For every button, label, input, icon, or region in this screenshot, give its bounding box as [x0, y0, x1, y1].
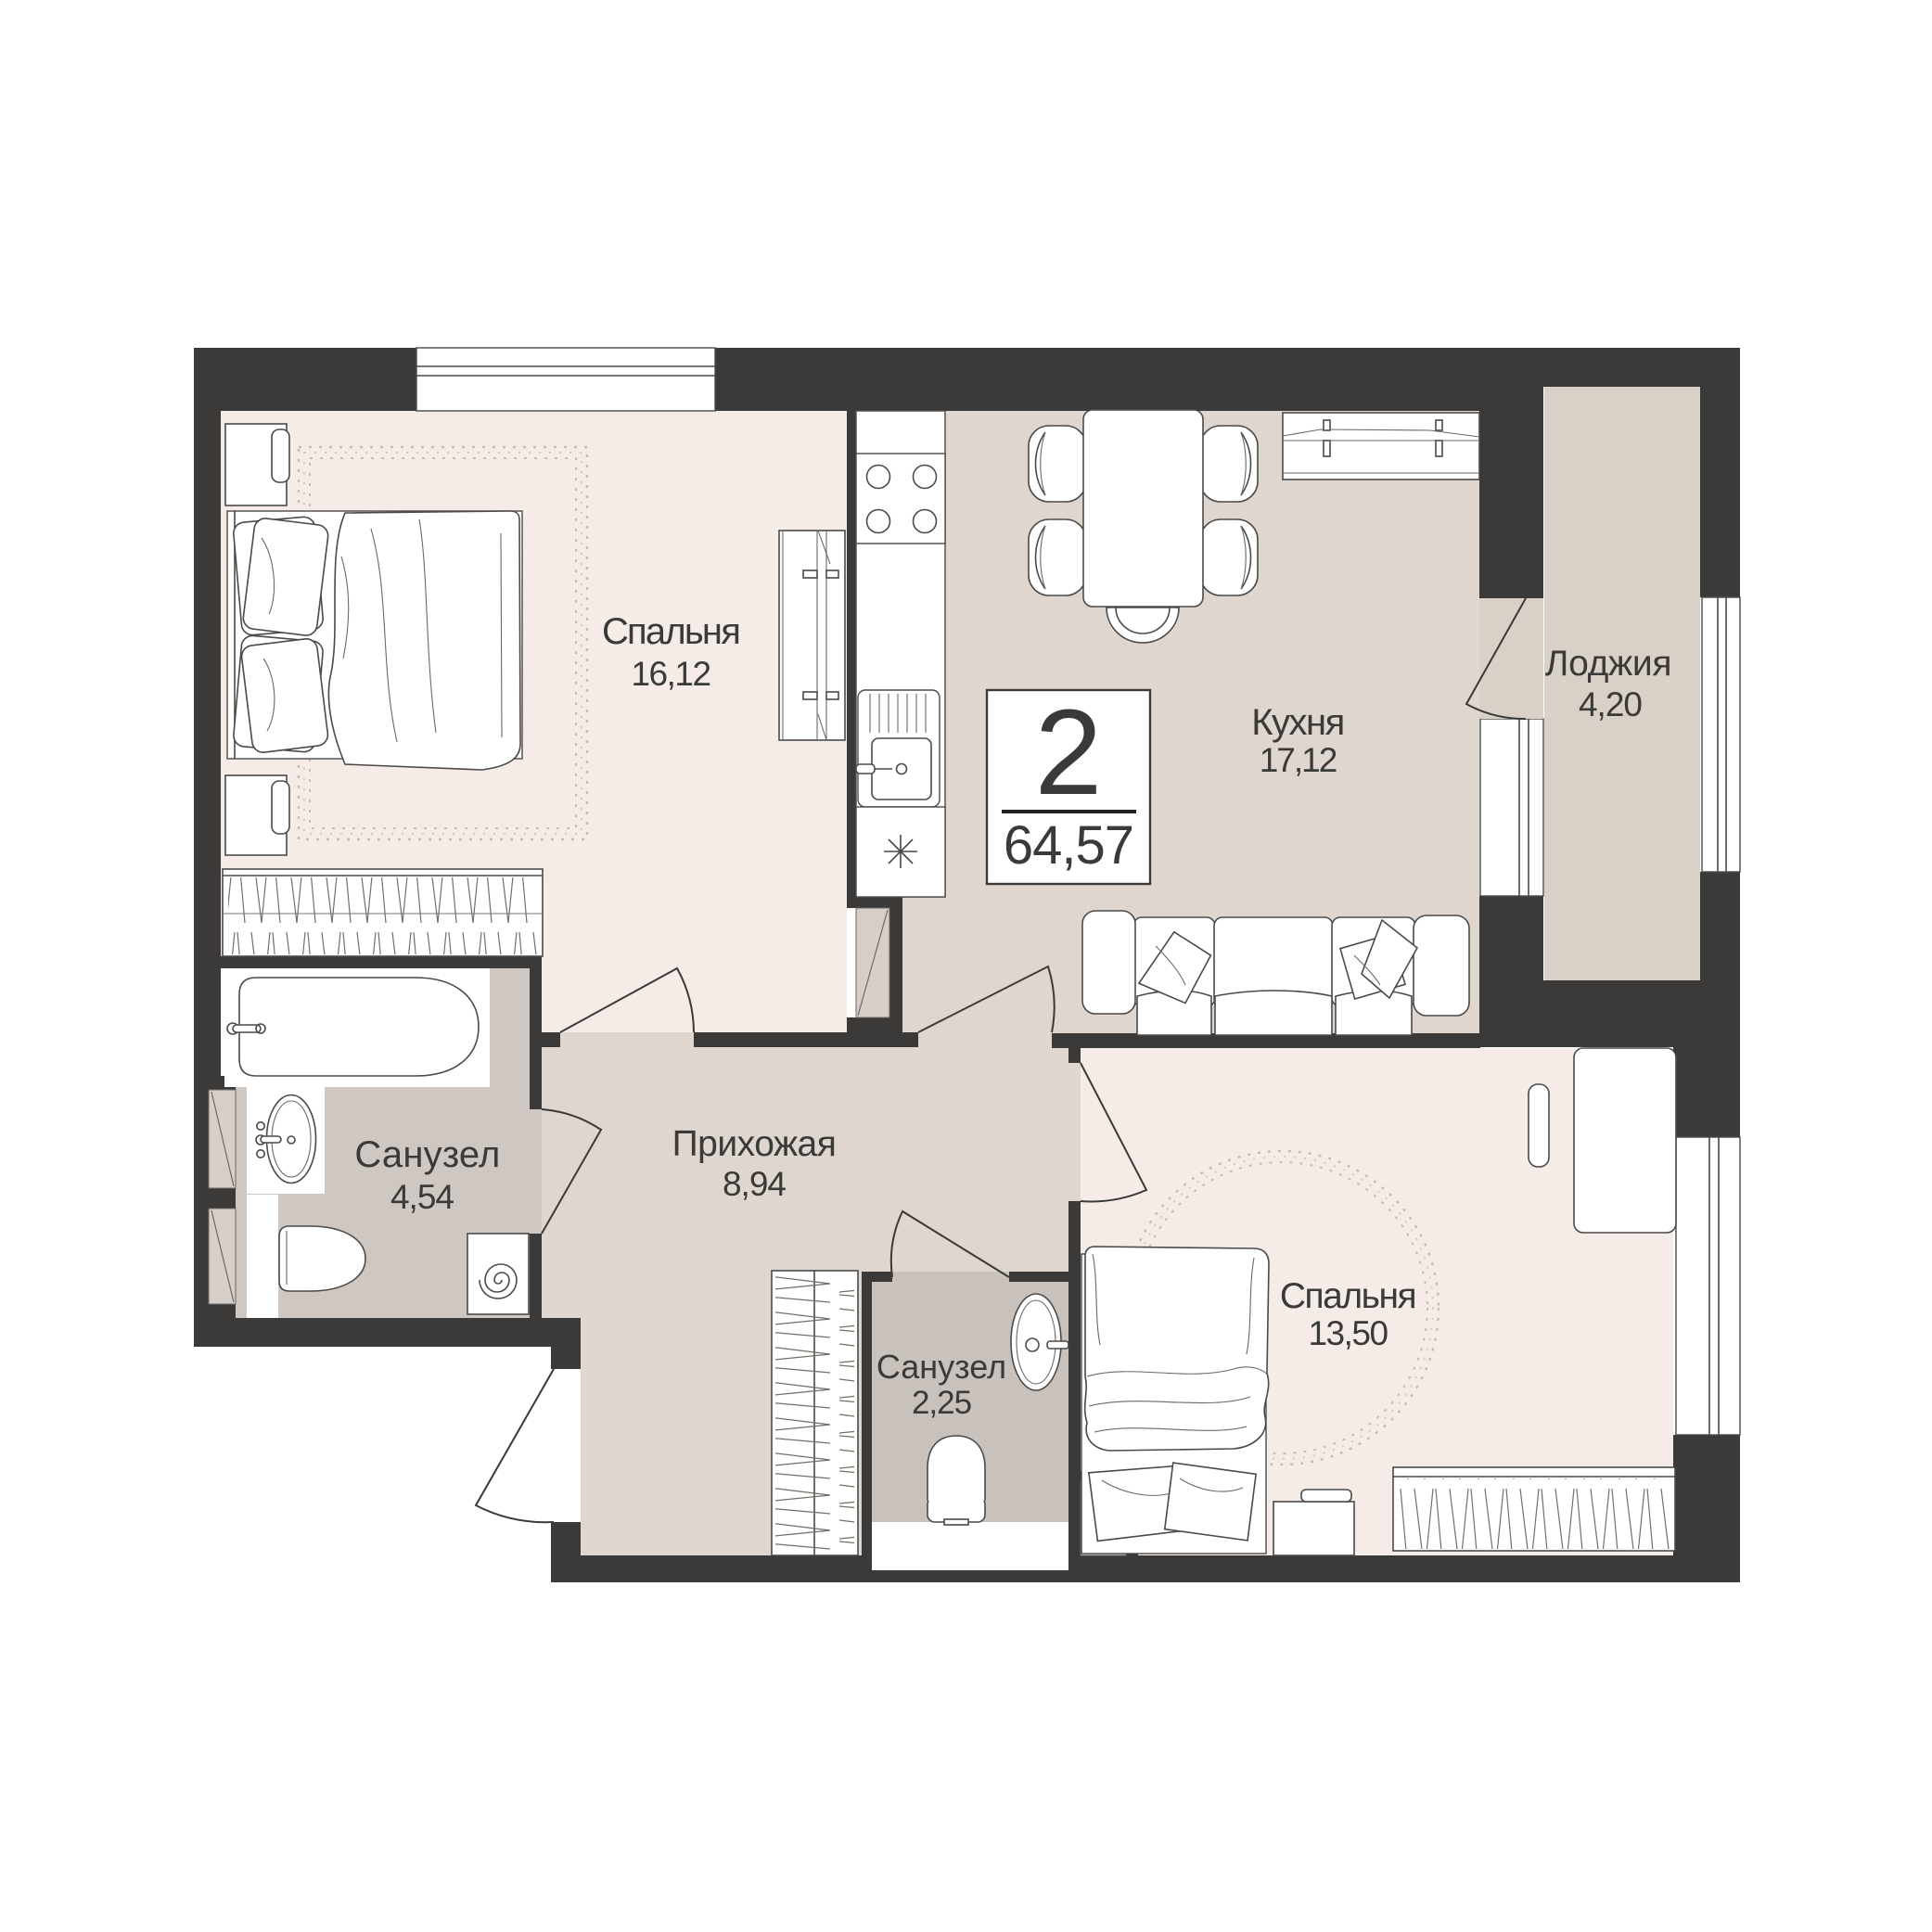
svg-text:Спальня: Спальня [602, 611, 739, 652]
svg-text:Спальня: Спальня [1280, 1276, 1415, 1316]
svg-text:Прихожая: Прихожая [672, 1124, 837, 1164]
svg-text:2,25: 2,25 [912, 1385, 971, 1421]
svg-text:64,57: 64,57 [1004, 815, 1133, 876]
svg-text:16,12: 16,12 [631, 655, 710, 693]
svg-text:4,20: 4,20 [1579, 685, 1642, 723]
svg-text:Кухня: Кухня [1251, 702, 1344, 743]
svg-text:13,50: 13,50 [1308, 1314, 1388, 1352]
svg-text:17,12: 17,12 [1260, 741, 1337, 779]
svg-text:Санузел: Санузел [354, 1134, 500, 1175]
svg-text:8,94: 8,94 [723, 1165, 786, 1203]
svg-text:Лоджия: Лоджия [1545, 644, 1671, 684]
svg-text:2: 2 [1035, 684, 1103, 820]
svg-text:4,54: 4,54 [390, 1178, 454, 1216]
svg-text:Санузел: Санузел [876, 1348, 1006, 1386]
